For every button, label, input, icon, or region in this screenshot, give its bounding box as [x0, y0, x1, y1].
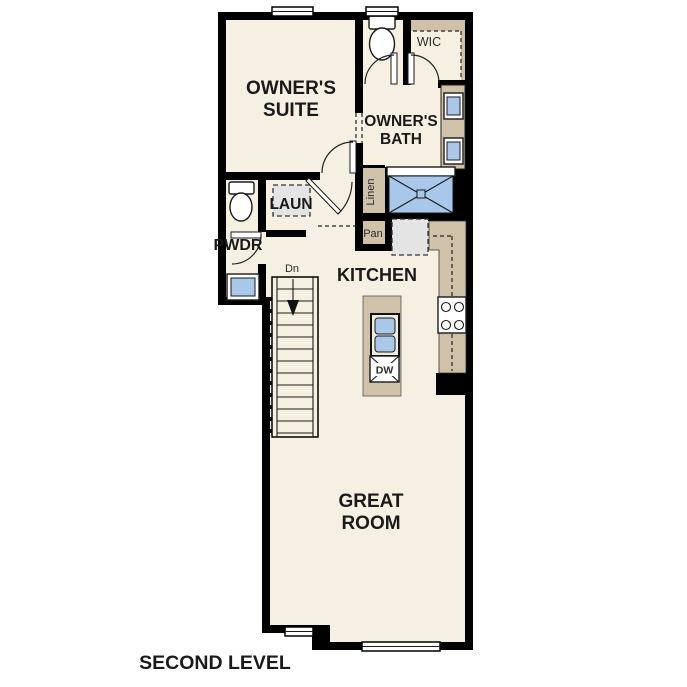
powder-label: PWDR — [214, 237, 263, 254]
powder-sink-icon — [227, 274, 259, 300]
island-sink-icon — [371, 314, 399, 356]
window — [272, 7, 313, 16]
refrigerator-icon — [392, 219, 428, 255]
window — [362, 642, 440, 651]
linen-label: Linen — [365, 179, 377, 206]
toilet-room-door — [391, 53, 397, 84]
great-room-label-line2: ROOM — [341, 513, 400, 534]
stairs-direction-label: Dn — [285, 263, 299, 275]
owners-bath-label-line2: BATH — [380, 131, 422, 148]
stairs — [268, 277, 319, 437]
dishwasher-label: DW — [376, 365, 394, 377]
wic-door — [408, 53, 414, 84]
floorplan-svg: DW — [0, 0, 687, 687]
owners-suite-label-line1: OWNER'S — [246, 78, 336, 99]
level-title: SECOND LEVEL — [139, 652, 291, 674]
great-room-label-line1: GREAT — [338, 491, 403, 512]
laundry-label: LAUN — [269, 196, 312, 213]
wic-label: WIC — [417, 35, 441, 49]
stove-icon — [438, 297, 466, 333]
floor-area — [218, 12, 473, 650]
window — [366, 7, 398, 16]
suite-door — [350, 141, 356, 173]
dishwasher-icon: DW — [370, 356, 399, 382]
window — [285, 627, 313, 636]
toilet-icon-powder — [229, 182, 254, 221]
shower-icon — [387, 167, 455, 213]
owners-bath-label-line1: OWNER'S — [364, 113, 437, 130]
shower-glass — [387, 167, 455, 176]
kitchen-label: KITCHEN — [337, 265, 417, 285]
pantry-label: Pan — [363, 228, 383, 240]
floorplan-page: DW — [0, 0, 687, 687]
owners-suite-label-line2: SUITE — [263, 100, 319, 121]
